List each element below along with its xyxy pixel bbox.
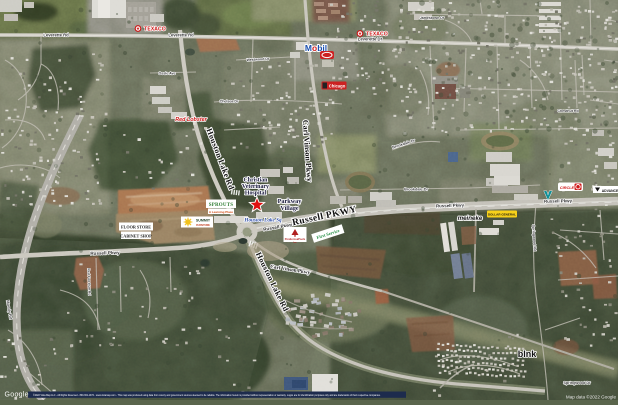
svg-text:Leverette Rd: Leverette Rd [43,33,69,38]
svg-text:Jamestown Dr: Jamestown Dr [420,16,445,20]
svg-text:Springwood Dr: Springwood Dr [563,381,591,385]
svg-text:Christian: Christian [244,178,269,184]
svg-text:SUMMIT: SUMMIT [196,219,211,223]
svg-text:Hospital: Hospital [245,191,267,197]
svg-text:Leverette Rd: Leverette Rd [168,33,194,38]
svg-text:FURNITURE: FURNITURE [196,224,210,227]
svg-text:Russell Pkwy: Russell Pkwy [90,250,120,256]
svg-text:Veterinary: Veterinary [242,184,269,190]
svg-text:A Learning Place: A Learning Place [209,210,234,214]
svg-text:PonderosaPools: PonderosaPools [285,237,306,241]
svg-text:ADVANCE: ADVANCE [602,189,618,193]
svg-text:Brookdale Dr: Brookdale Dr [404,188,428,192]
svg-text:Ossie Ave: Ossie Ave [158,72,175,76]
svg-text:Map data ©2022 Google: Map data ©2022 Google [566,394,617,400]
svg-text:Chestnut Rd: Chestnut Rd [557,109,578,113]
svg-text:Russell Pkwy: Russell Pkwy [436,202,465,208]
svg-text:TEXACO: TEXACO [144,26,166,32]
svg-text:Leverette Dr: Leverette Dr [358,37,383,42]
svg-text:meineke: meineke [458,215,483,222]
svg-text:Google: Google [5,392,29,399]
svg-text:CABINET SHOP: CABINET SHOP [120,233,152,238]
svg-text:Chicago: Chicago [329,84,346,89]
svg-text:CIRCLE: CIRCLE [560,186,575,190]
svg-text:DOLLAR GENERAL: DOLLAR GENERAL [488,213,516,217]
svg-text:SPROUTS: SPROUTS [209,203,233,208]
svg-text:Village: Village [280,205,299,212]
svg-text:blnk: blnk [518,349,537,359]
svg-text:FLOOR STORE: FLOOR STORE [121,225,151,230]
svg-text:Chelsea Dr: Chelsea Dr [220,100,239,104]
svg-text:Houston Lake Sq: Houston Lake Sq [243,218,282,224]
svg-text:Red Lobster: Red Lobster [175,117,207,123]
